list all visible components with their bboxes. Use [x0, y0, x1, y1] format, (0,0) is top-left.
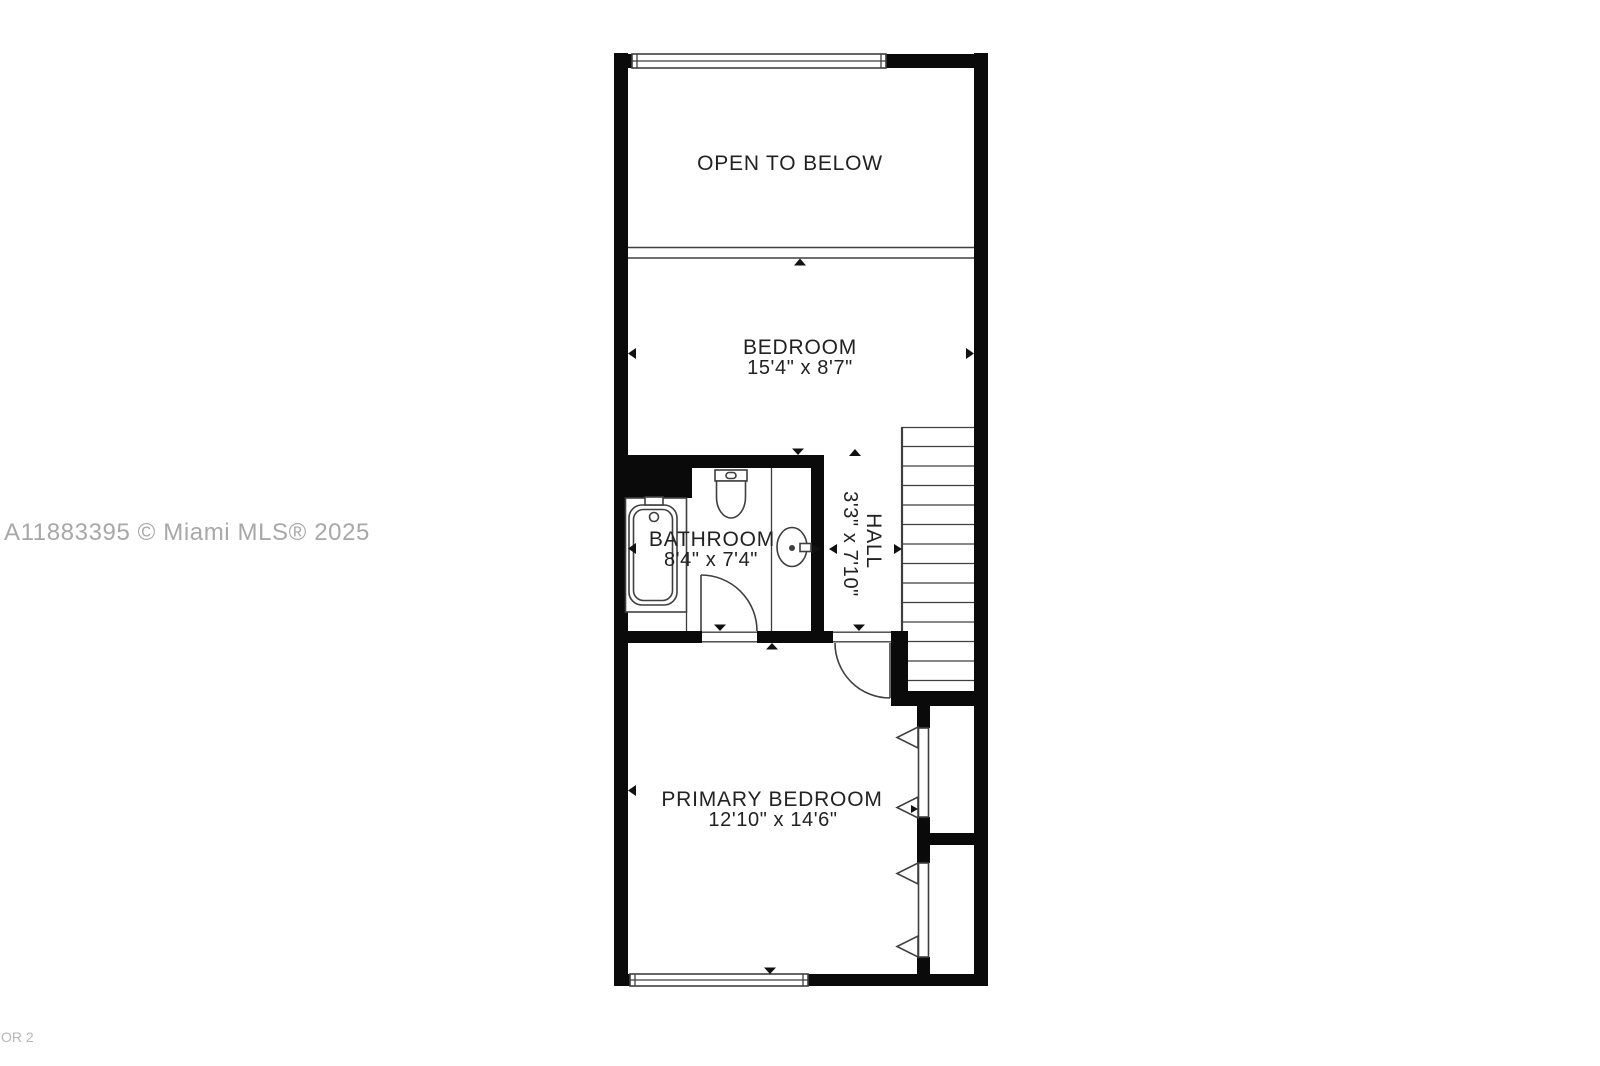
tub-faucet-icon — [645, 497, 663, 505]
bathroom-dimensions: 8'4" x 7'4" — [664, 549, 758, 571]
bedroom-right-arrow — [966, 348, 974, 359]
bathroom-top-wall — [628, 455, 824, 468]
primary-left-arrow — [628, 785, 636, 796]
closet-divider-wall — [917, 833, 974, 845]
stairs-bottom-wall — [898, 691, 974, 706]
closet-door-track-bottom — [919, 863, 929, 957]
open-to-below-label: OPEN TO BELOW — [697, 152, 883, 175]
bifold-door-icon — [897, 936, 918, 957]
sink-icon — [777, 528, 811, 567]
top-window-icon — [632, 54, 886, 68]
bathroom-door-arc — [701, 575, 757, 631]
hall-right-arrow — [894, 544, 902, 554]
tub-drain-icon — [650, 513, 659, 522]
sink-faucet-icon — [800, 544, 811, 552]
bedroom-label: BEDROOM — [743, 336, 857, 359]
closet-front-wall-2 — [917, 817, 930, 833]
toilet-icon — [715, 470, 747, 518]
bathroom-bottom-wall-left — [614, 631, 702, 643]
bathroom-label: BATHROOM — [649, 528, 775, 551]
bifold-door-icon — [897, 727, 918, 748]
hall-top-arrow — [849, 449, 861, 456]
bedroom-dimensions: 15'4" x 8'7" — [747, 357, 853, 379]
bedroom-left-arrow — [628, 348, 636, 359]
bedroom-top-arrow — [794, 259, 806, 266]
hall-dimensions: 3'3" x 7'10" — [839, 491, 861, 597]
hall-bottom-arrow — [853, 625, 865, 632]
bottom-window-icon — [630, 974, 808, 986]
right-wall — [974, 53, 988, 986]
primary-top-arrow — [766, 643, 778, 650]
mls-watermark: A11883395 © Miami MLS® 2025 — [4, 519, 370, 547]
stairs — [901, 427, 974, 691]
primary-bedroom-door-threshold — [833, 631, 891, 643]
floor-label-fragment: OR 2 — [1, 1029, 34, 1045]
hall-left-arrow — [829, 544, 837, 554]
bifold-door-icon — [897, 863, 918, 884]
primary-bedroom-door-arc — [835, 643, 890, 698]
primary-bedroom-label: PRIMARY BEDROOM — [661, 788, 882, 811]
closet-front-wall-1 — [917, 706, 930, 728]
bathroom-bottom-wall-right — [757, 631, 833, 643]
bathroom-bottom-arrow — [714, 625, 726, 632]
primary-bottom-arrow — [764, 968, 776, 975]
closet-door-track-top — [919, 728, 929, 817]
bathroom-door-threshold — [702, 631, 757, 643]
floorplan-page: OPEN TO BELOW BEDROOM 15'4" x 8'7" BATHR… — [0, 0, 1600, 1066]
primary-bedroom-dimensions: 12'10" x 14'6" — [708, 809, 837, 831]
bedroom-bottom-arrow — [792, 449, 804, 456]
balcony-rail — [628, 248, 974, 259]
hall-label: HALL — [862, 513, 885, 569]
closet-front-wall-3 — [917, 845, 930, 863]
closet-front-wall-4 — [917, 957, 930, 974]
